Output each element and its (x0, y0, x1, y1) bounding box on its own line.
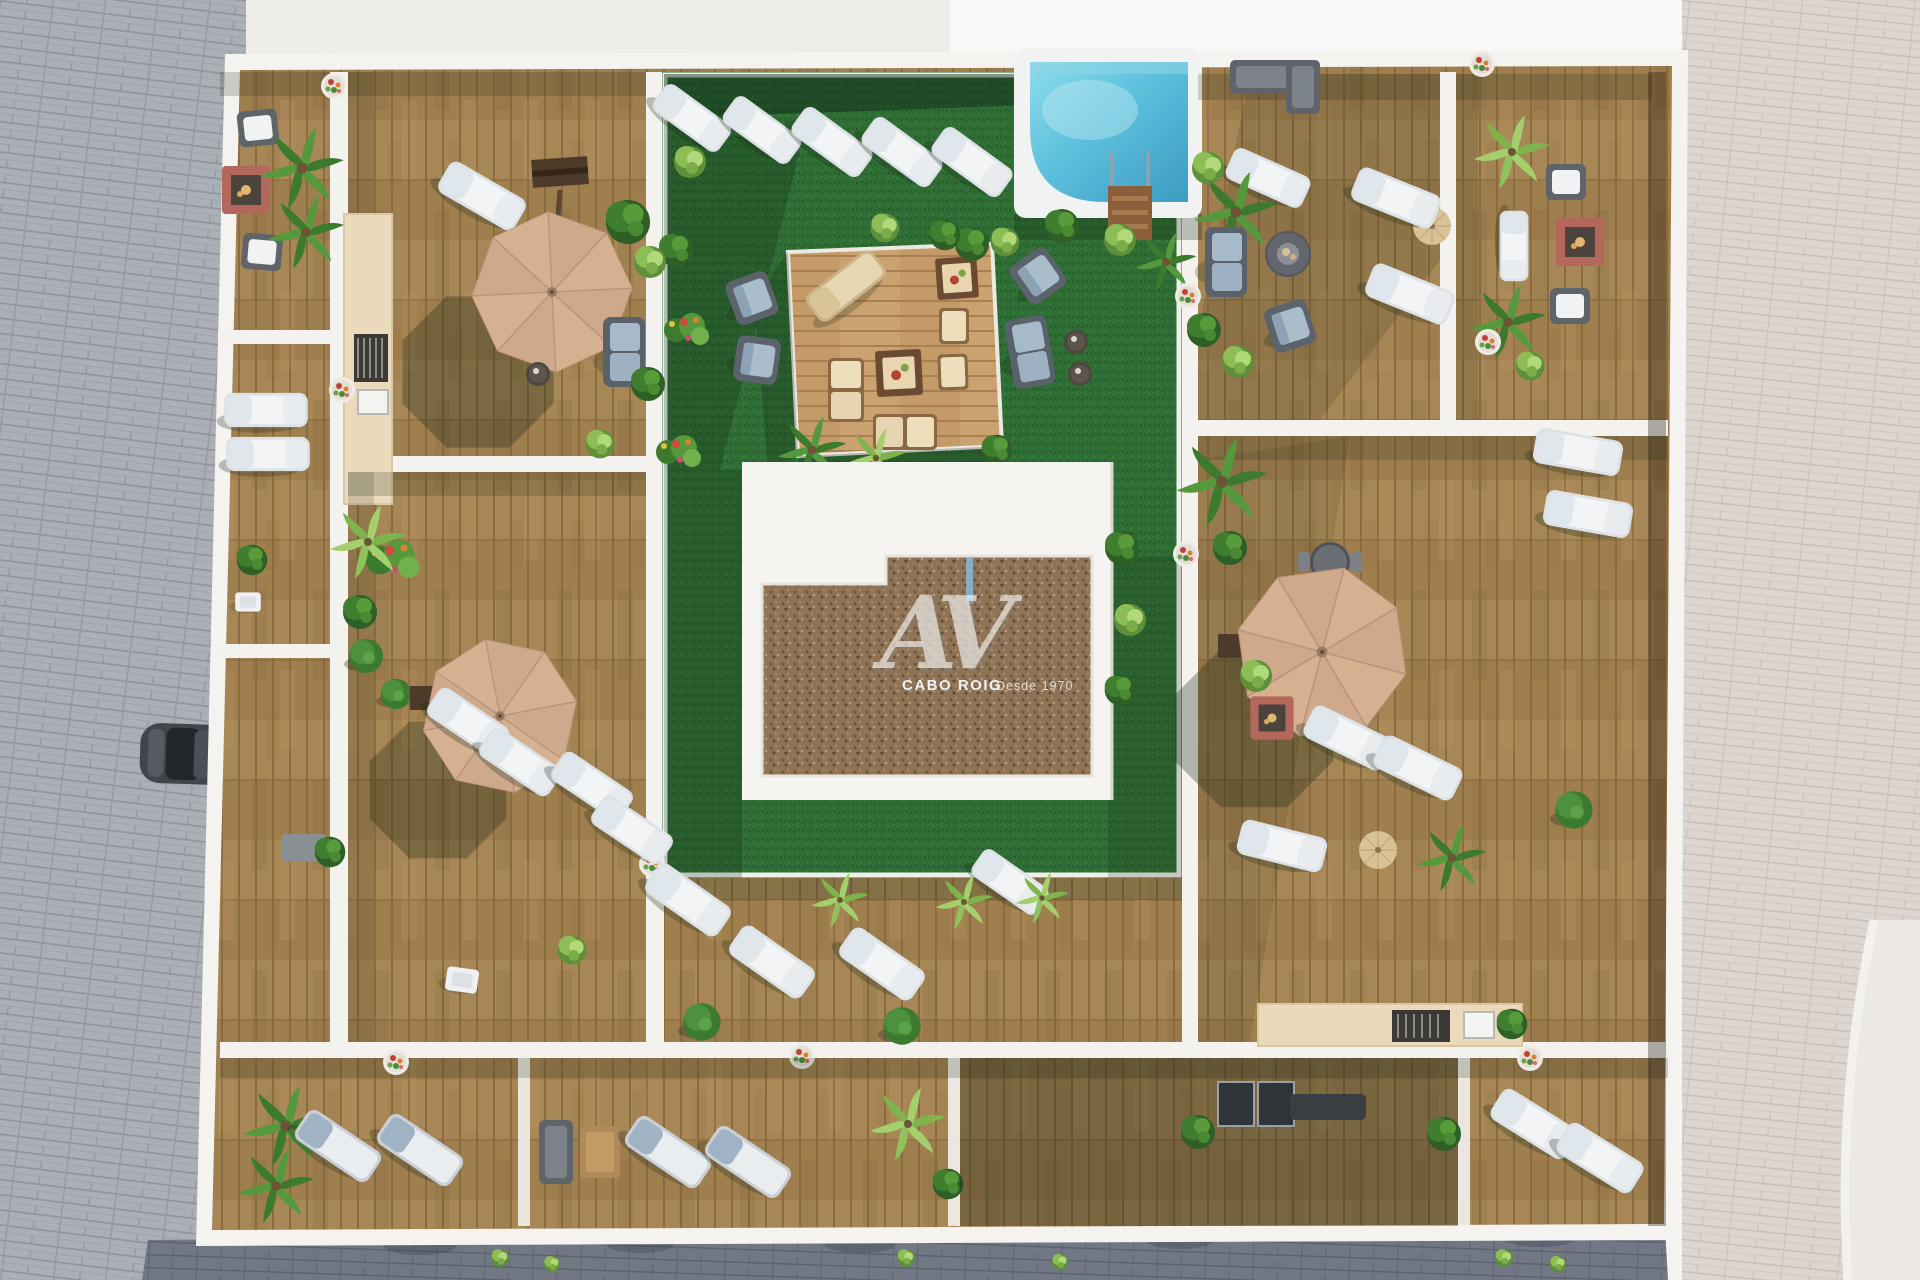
side-table (1064, 330, 1088, 354)
aerial-render: AV AV CABO ROIG CABO ROIG Desde 1970 (0, 0, 1920, 1280)
wall-band (218, 644, 332, 658)
bush (674, 146, 706, 178)
fire-pit-table (1265, 231, 1311, 277)
fire-table (1250, 696, 1293, 739)
bush (871, 214, 900, 243)
outdoor-seat (939, 308, 969, 344)
coffee-table (935, 256, 979, 300)
bbq-grill (354, 334, 388, 382)
street-tree (1052, 1254, 1068, 1270)
pool-highlight (1042, 80, 1138, 140)
bush (586, 430, 615, 459)
wood-table (580, 1126, 620, 1178)
fire-table (222, 166, 270, 214)
street-tree (491, 1249, 509, 1267)
umbrella-base (531, 156, 589, 188)
lounge-chair (236, 108, 280, 148)
bush (933, 1169, 964, 1200)
flower-pot (321, 73, 347, 99)
watermark-tagline: Desde 1970 (996, 679, 1073, 693)
wall-band (948, 1058, 960, 1226)
bush (606, 200, 650, 244)
glass-door (1258, 1082, 1294, 1126)
flower-pot (1517, 1045, 1543, 1071)
fire-table (1556, 218, 1604, 266)
bush (634, 246, 666, 278)
outdoor-kitchen-counter (1258, 1004, 1522, 1046)
lounge-chair (1550, 288, 1590, 324)
umbrella-base (1218, 634, 1242, 658)
wall-band (1458, 1058, 1470, 1226)
bush (955, 227, 989, 261)
wall-band (518, 1058, 530, 1226)
bush (1181, 1115, 1215, 1149)
coffee-table (875, 349, 923, 397)
bush (1516, 352, 1545, 381)
outdoor-sofa (828, 358, 864, 422)
street-tree (544, 1256, 560, 1272)
street-tree (1495, 1249, 1513, 1267)
flower-pot (1475, 329, 1501, 355)
flower-pot (329, 377, 355, 403)
bush (1192, 152, 1224, 184)
bush (631, 367, 665, 401)
pool-step-band (1030, 62, 1188, 74)
lounge-chair (1546, 164, 1586, 200)
bush (1222, 346, 1254, 378)
pergola-deck (754, 227, 1012, 488)
wall-band (1198, 420, 1668, 436)
swimming-pool (1014, 48, 1202, 240)
side-table (526, 362, 550, 386)
bush (930, 220, 961, 251)
watermark-brand: CABO ROIG (902, 677, 1002, 694)
flower-pot (1173, 541, 1199, 567)
bush (1114, 604, 1146, 636)
bush (1187, 313, 1221, 347)
bush (237, 545, 268, 576)
bush (1213, 531, 1247, 565)
glass-door (1218, 1082, 1254, 1126)
sink (358, 390, 388, 414)
outdoor-seat (937, 353, 968, 390)
bush (1105, 531, 1139, 565)
bench (1495, 204, 1529, 281)
outdoor-sofa (539, 1120, 573, 1184)
bush (991, 228, 1020, 257)
sun-lounger (219, 437, 310, 477)
street-tree (897, 1249, 915, 1267)
flower-pot (1175, 283, 1201, 309)
wall-band (218, 330, 332, 344)
bush (1240, 660, 1272, 692)
bush (1104, 224, 1136, 256)
flower-pot (1469, 51, 1495, 77)
street-tree (1550, 1256, 1566, 1272)
bush (1045, 209, 1079, 243)
bush (1497, 1009, 1528, 1040)
bush (343, 595, 377, 629)
side-table (1068, 362, 1092, 386)
bush (558, 936, 587, 965)
bush (315, 837, 346, 868)
sun-lounger (217, 393, 308, 433)
deck-edge-shadow (1648, 72, 1666, 1226)
dark-sofa (1290, 1094, 1366, 1120)
wall-band (1440, 72, 1456, 436)
flower-pot (383, 1049, 409, 1075)
bush (1105, 675, 1136, 706)
straw-parasol (1359, 831, 1397, 869)
bush (982, 435, 1013, 466)
bush (1427, 1117, 1461, 1151)
